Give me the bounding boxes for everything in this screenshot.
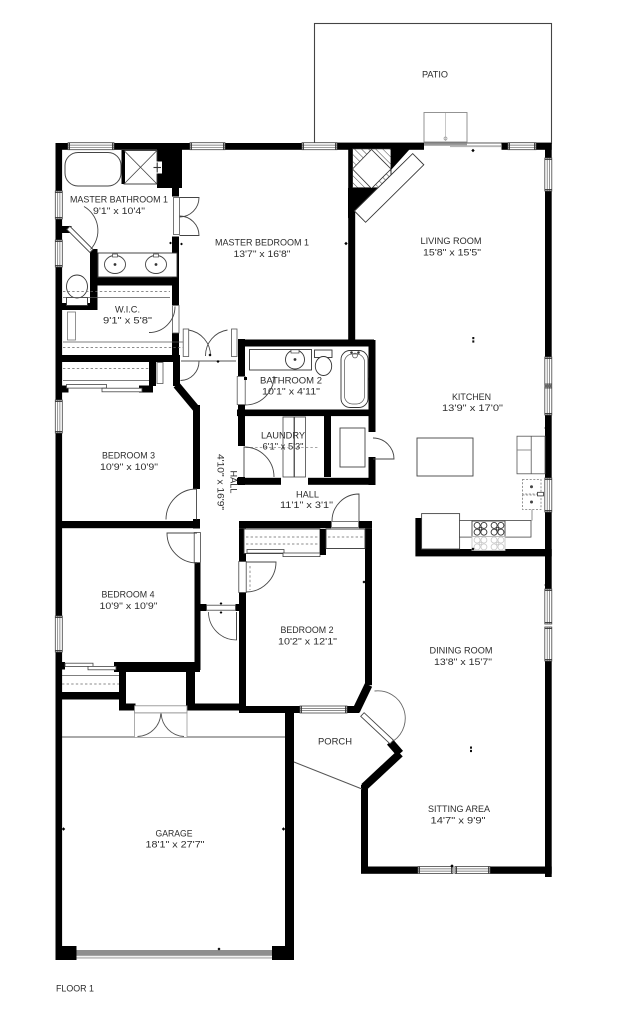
svg-text:15'8" x 15'5": 15'8" x 15'5"	[423, 247, 481, 258]
svg-text:DINING ROOM: DINING ROOM	[430, 645, 493, 656]
svg-text:9'1" x 10'4": 9'1" x 10'4"	[93, 205, 145, 216]
svg-text:BATHROOM 2: BATHROOM 2	[260, 375, 322, 386]
svg-text:10'9" x 10'9": 10'9" x 10'9"	[100, 600, 158, 611]
svg-text:MASTER BATHROOM 1: MASTER BATHROOM 1	[70, 194, 168, 205]
svg-text:BEDROOM 4: BEDROOM 4	[102, 589, 155, 600]
svg-text:14'7" x 9'9": 14'7" x 9'9"	[431, 815, 486, 826]
svg-text:HALL: HALL	[296, 489, 319, 500]
svg-text:10'1" x 4'11": 10'1" x 4'11"	[262, 386, 320, 397]
svg-text:GARAGE: GARAGE	[156, 828, 193, 839]
svg-text:LIVING ROOM: LIVING ROOM	[421, 235, 482, 246]
svg-text:13'7" x 16'8": 13'7" x 16'8"	[234, 248, 291, 259]
svg-text:LAUNDRY: LAUNDRY	[261, 430, 306, 441]
svg-text:10'2" x 12'1": 10'2" x 12'1"	[278, 636, 337, 647]
svg-text:10'9" x 10'9": 10'9" x 10'9"	[100, 461, 158, 472]
svg-text:PATIO: PATIO	[422, 69, 448, 80]
svg-text:MASTER BEDROOM 1: MASTER BEDROOM 1	[215, 237, 309, 248]
svg-text:BEDROOM 2: BEDROOM 2	[281, 624, 334, 635]
svg-text:6'1" x 5'3": 6'1" x 5'3"	[263, 441, 304, 452]
svg-text:FLOOR 1: FLOOR 1	[56, 983, 94, 994]
svg-text:KITCHEN: KITCHEN	[452, 391, 491, 402]
svg-text:BEDROOM 3: BEDROOM 3	[102, 450, 155, 461]
svg-text:W.I.C.: W.I.C.	[115, 304, 140, 315]
svg-text:4'10" x 16'9": 4'10" x 16'9"	[216, 454, 227, 510]
svg-text:13'9" x 17'0": 13'9" x 17'0"	[442, 402, 503, 413]
svg-text:HALL: HALL	[229, 471, 240, 494]
svg-text:11'1" x 3'1": 11'1" x 3'1"	[280, 499, 333, 510]
svg-text:13'8" x 15'7": 13'8" x 15'7"	[434, 656, 492, 667]
svg-text:PORCH: PORCH	[318, 736, 352, 747]
svg-text:SITTING AREA: SITTING AREA	[428, 803, 491, 814]
svg-text:9'1" x 5'8": 9'1" x 5'8"	[103, 315, 152, 326]
svg-text:18'1" x 27'7": 18'1" x 27'7"	[146, 839, 205, 850]
